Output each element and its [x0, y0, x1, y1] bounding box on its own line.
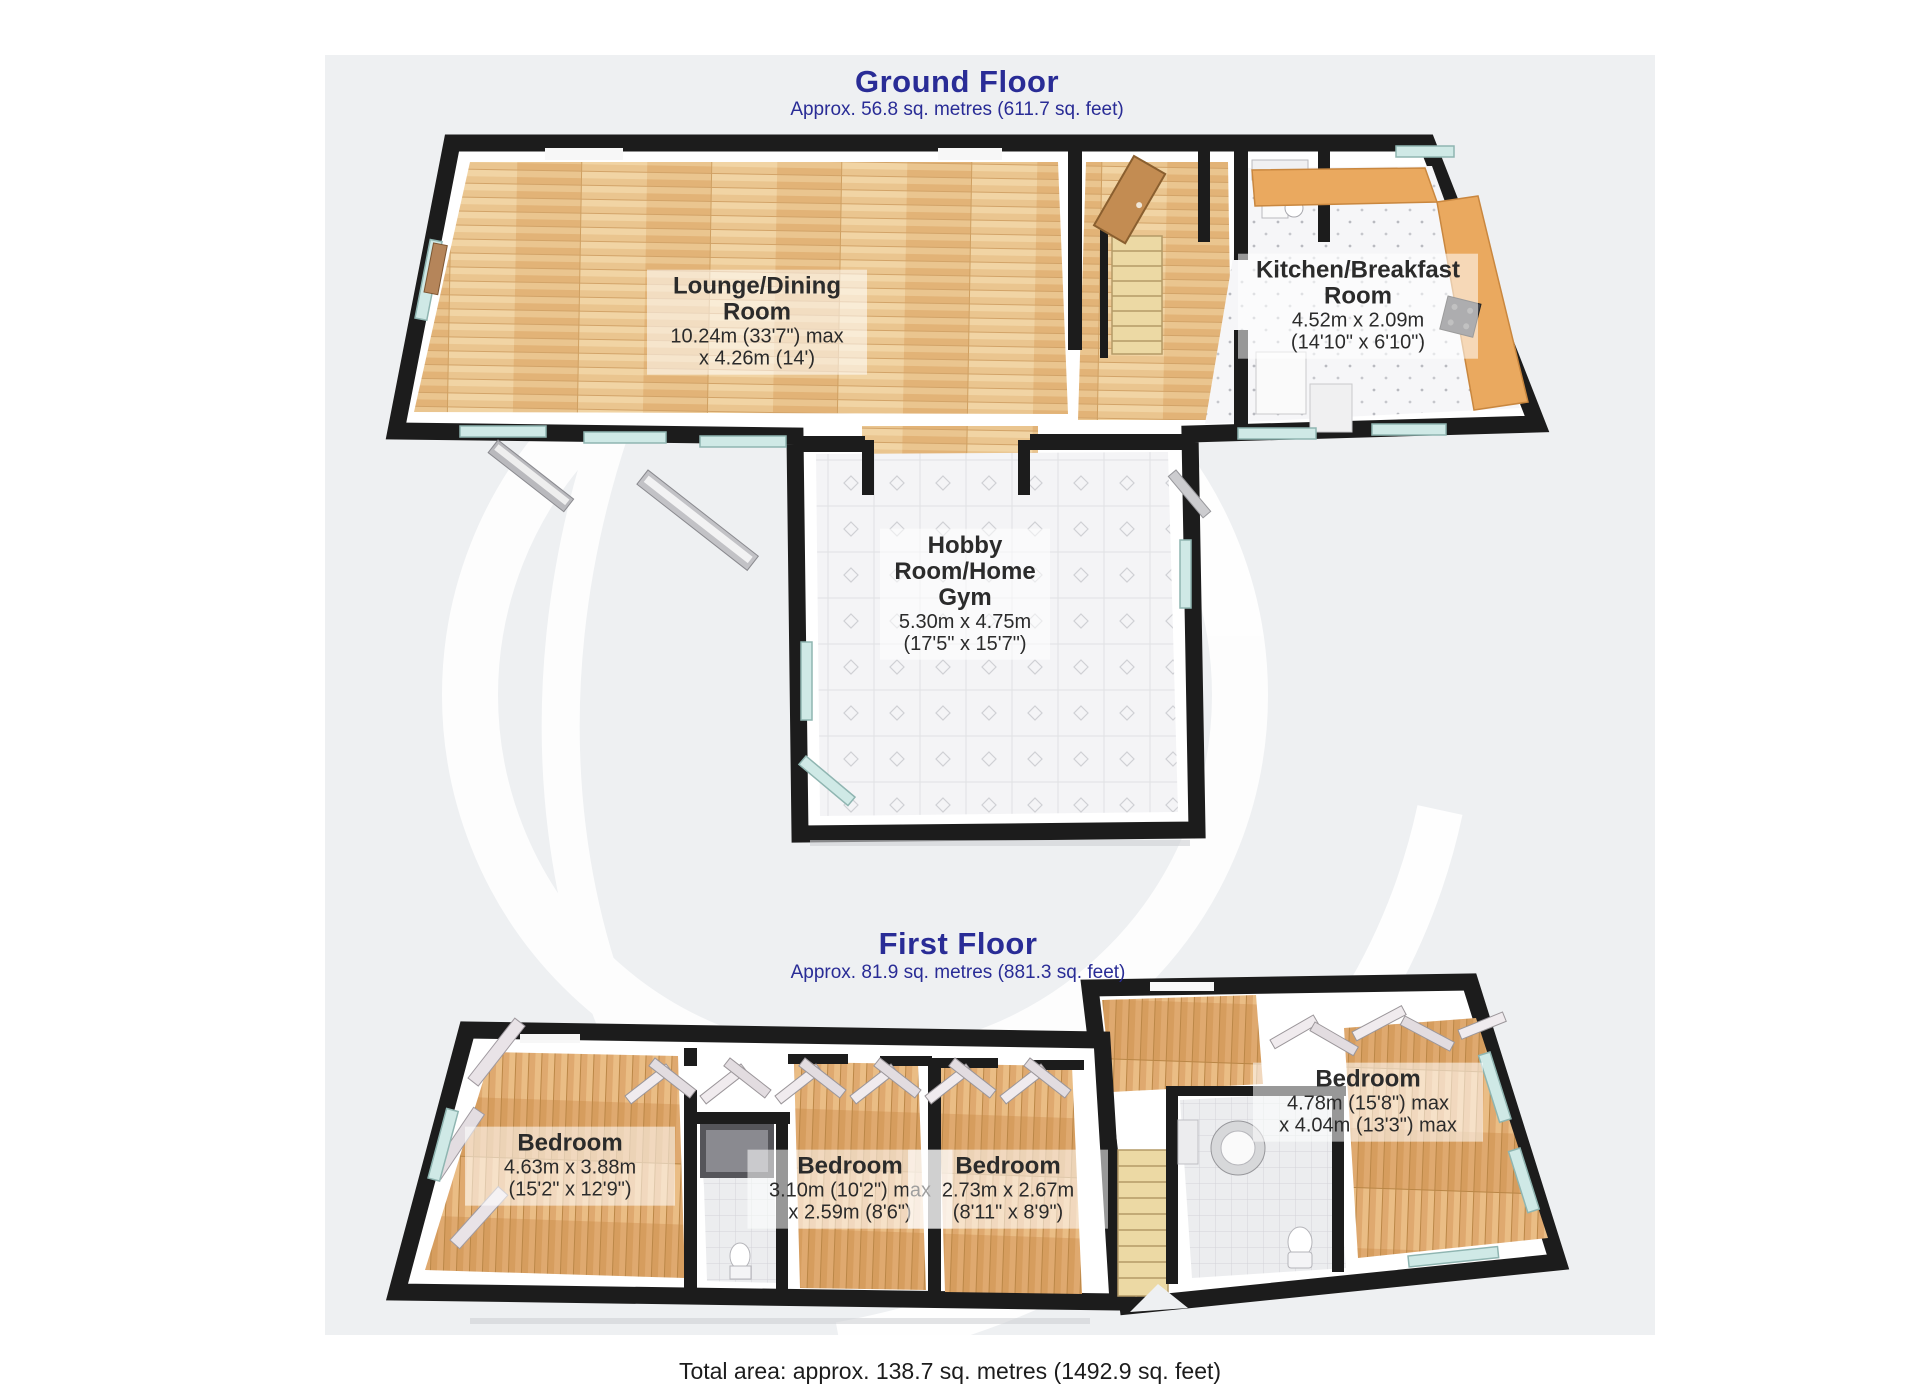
room-dims-line2: (8'11" x 8'9") — [918, 1202, 1098, 1224]
room-label-bedroom-4: Bedroom 4.78m (15'8") max x 4.04m (13'3"… — [1253, 1063, 1483, 1142]
hobby-entry-floor — [862, 426, 1038, 456]
first-floor-area: Approx. 81.9 sq. metres (881.3 sq. feet) — [791, 962, 1126, 984]
room-label-bedroom-1: Bedroom 4.63m x 3.88m (15'2" x 12'9") — [465, 1127, 675, 1206]
room-dims-line2: x 4.04m (13'3") max — [1263, 1115, 1473, 1137]
landing-floor — [1102, 995, 1263, 1092]
floorplan-page: Ground Floor Approx. 56.8 sq. metres (61… — [0, 0, 1920, 1396]
room-dims-line1: 10.24m (33'7") max — [657, 326, 857, 348]
room-dims-line1: 4.63m x 3.88m — [475, 1157, 665, 1179]
room-label-lounge-dining: Lounge/Dining Room 10.24m (33'7") max x … — [647, 270, 867, 375]
ground-floor-area: Approx. 56.8 sq. metres (611.7 sq. feet) — [790, 99, 1123, 121]
room-name: Bedroom — [1263, 1067, 1473, 1093]
ground-stairs — [1112, 236, 1162, 354]
total-area-text: Total area: approx. 138.7 sq. metres (14… — [679, 1358, 1221, 1385]
room-name: Kitchen/Breakfast Room — [1248, 258, 1468, 310]
room-dims-line1: 4.78m (15'8") max — [1263, 1093, 1473, 1115]
room-dims-line2: (17'5" x 15'7") — [890, 633, 1040, 655]
room-name: Bedroom — [918, 1154, 1098, 1180]
room-label-hobby-room: Hobby Room/Home Gym 5.30m x 4.75m (17'5"… — [880, 529, 1050, 660]
room-dims-line2: (14'10" x 6'10") — [1248, 332, 1468, 354]
room-dims-line1: 5.30m x 4.75m — [890, 610, 1040, 632]
room-dims-line1: 4.52m x 2.09m — [1248, 310, 1468, 332]
room-label-bedroom-3: Bedroom 2.73m x 2.67m (8'11" x 8'9") — [908, 1150, 1108, 1229]
first-floor-stairs — [1118, 1150, 1168, 1296]
room-name: Hobby Room/Home Gym — [890, 533, 1040, 611]
first-floor-title: First Floor — [879, 926, 1038, 962]
room-name: Bedroom — [475, 1131, 665, 1157]
room-dims-line2: (15'2" x 12'9") — [475, 1179, 665, 1201]
room-dims-line2: x 4.26m (14') — [657, 348, 857, 370]
room-label-kitchen-breakfast: Kitchen/Breakfast Room 4.52m x 2.09m (14… — [1238, 254, 1478, 359]
ground-floor-title: Ground Floor — [855, 64, 1059, 100]
room-dims-line1: 2.73m x 2.67m — [918, 1180, 1098, 1202]
room-name: Lounge/Dining Room — [657, 274, 857, 326]
first-floor-shadow — [470, 1318, 1090, 1324]
hobby-shadow — [810, 840, 1190, 846]
